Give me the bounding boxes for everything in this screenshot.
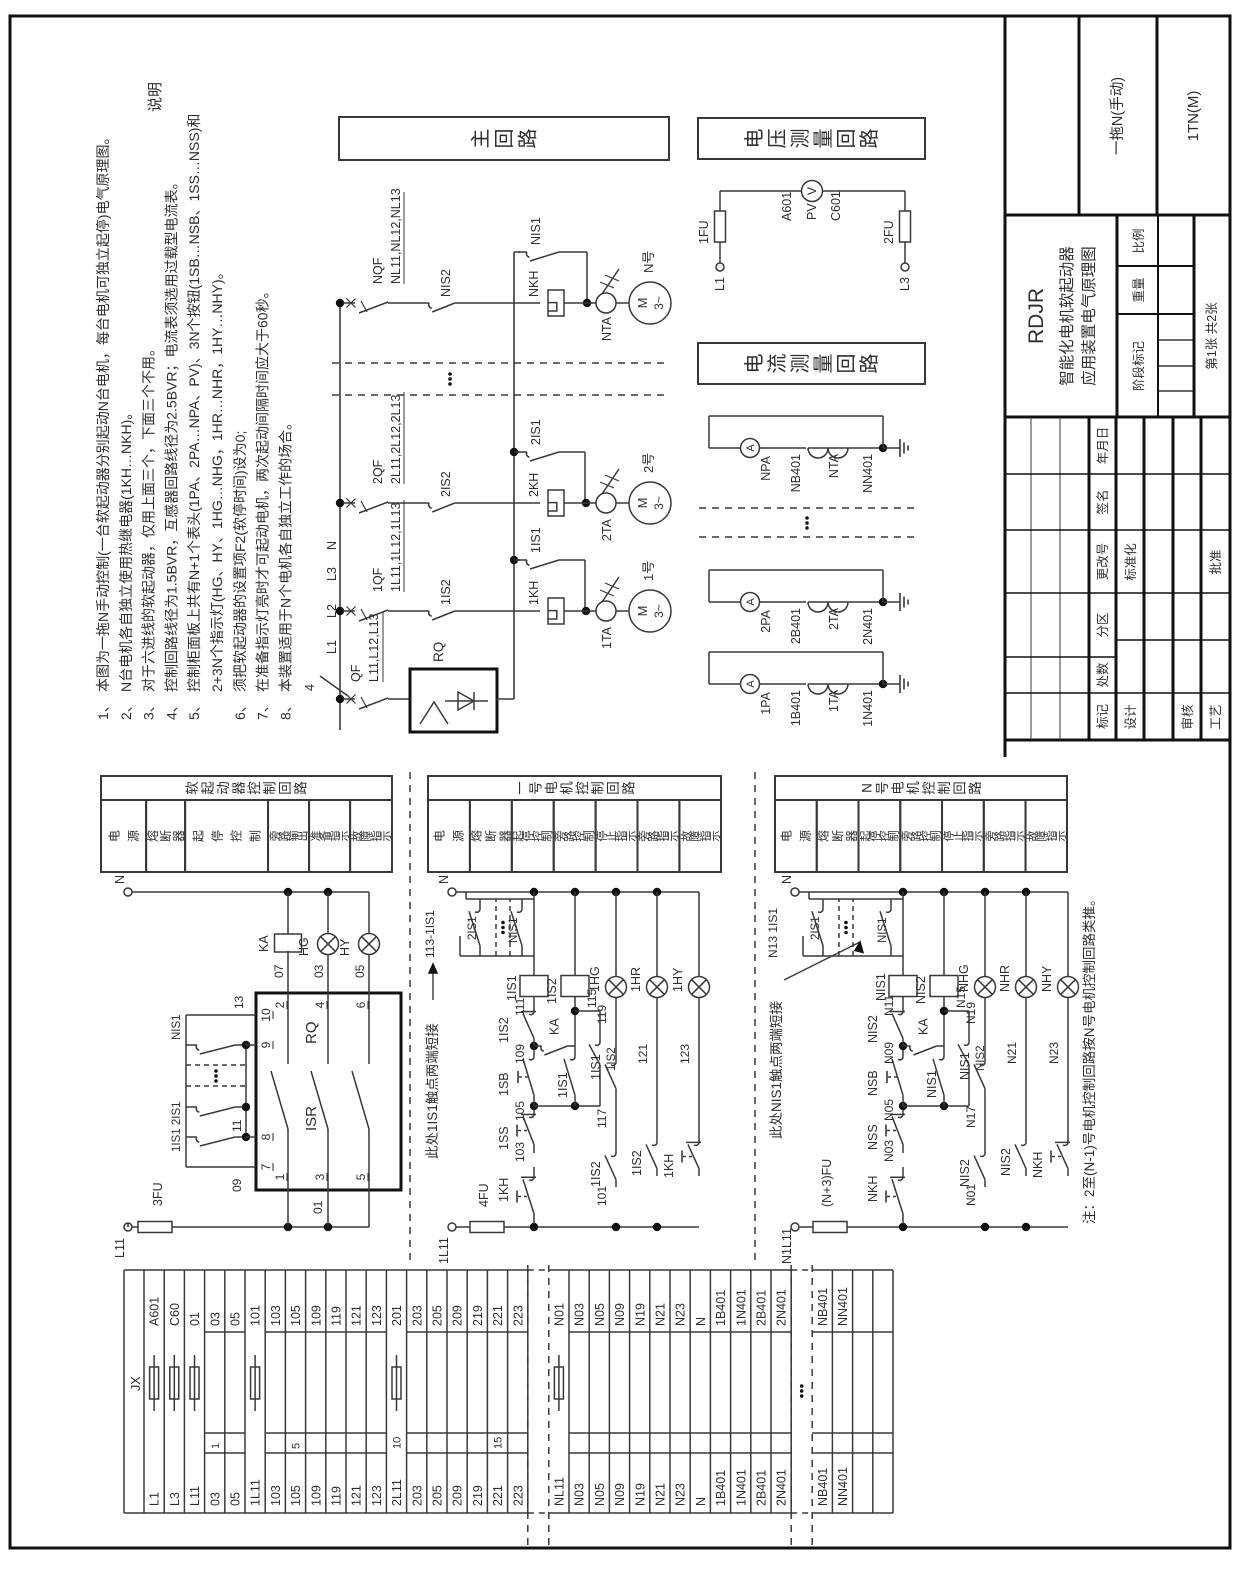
svg-text:1号: 1号	[641, 561, 656, 581]
svg-text:1N401: 1N401	[734, 1289, 748, 1326]
svg-text:机: 机	[906, 781, 921, 795]
svg-text:源: 源	[799, 830, 813, 842]
svg-text:本装置适用于N个电机各自独立工作的场合。: 本装置适用于N个电机各自独立工作的场合。	[277, 416, 293, 692]
svg-text:205: 205	[431, 1485, 445, 1506]
svg-text:2B401: 2B401	[755, 1470, 769, 1506]
svg-text:1IS2: 1IS2	[545, 978, 559, 1004]
svg-text:1IS2: 1IS2	[630, 1150, 644, 1176]
svg-text:示: 示	[380, 830, 392, 841]
svg-text:NQF: NQF	[371, 257, 385, 284]
svg-text:103: 103	[269, 1305, 283, 1326]
svg-text:制: 制	[248, 830, 262, 842]
svg-text:119: 119	[330, 1486, 344, 1506]
svg-text:回: 回	[606, 781, 621, 795]
svg-text:105: 105	[513, 1101, 527, 1121]
svg-text:标准化: 标准化	[1124, 543, 1138, 581]
svg-text:NN401: NN401	[836, 1287, 850, 1326]
svg-text:处数: 处数	[1095, 662, 1110, 688]
svg-text:2L11,2L12,2L13: 2L11,2L12,2L13	[389, 395, 403, 484]
svg-text:此处1IS1触点两端短接: 此处1IS1触点两端短接	[424, 1023, 440, 1159]
svg-text:NIS1: NIS1	[877, 917, 889, 943]
svg-text:C60: C60	[168, 1303, 182, 1326]
svg-text:N: N	[694, 1497, 708, 1506]
svg-text:2B401: 2B401	[755, 1290, 769, 1326]
svg-text:219: 219	[471, 1305, 485, 1326]
svg-text:对于六进线的软起动器，仅用上面三个，下面三个不用。: 对于六进线的软起动器，仅用上面三个，下面三个不用。	[141, 342, 157, 692]
svg-text:10: 10	[392, 1437, 404, 1449]
svg-text:量: 量	[813, 129, 835, 149]
svg-text:4、: 4、	[163, 698, 179, 720]
svg-text:N台电机各自独立使用热继电器(1KH…NKH)。: N台电机各自独立使用热继电器(1KH…NKH)。	[118, 406, 134, 692]
svg-text:电: 电	[780, 830, 794, 842]
svg-text:C601: C601	[829, 191, 843, 221]
svg-text:KA: KA	[917, 1018, 931, 1035]
svg-text:KA: KA	[257, 935, 271, 952]
svg-text:4: 4	[313, 1001, 327, 1008]
svg-text:一: 一	[513, 781, 528, 795]
svg-text:L11: L11	[188, 1486, 202, 1506]
svg-text:回: 回	[952, 781, 967, 795]
svg-text:3FU: 3FU	[151, 1182, 165, 1206]
svg-text:9: 9	[259, 1041, 273, 1048]
svg-text:209: 209	[451, 1305, 465, 1326]
svg-text:NIS2: NIS2	[439, 269, 453, 297]
svg-text:路: 路	[968, 781, 983, 795]
svg-text:L3: L3	[168, 1492, 182, 1506]
svg-text:源: 源	[452, 830, 466, 842]
svg-text:回: 回	[836, 129, 858, 149]
svg-text:113-1IS1: 113-1IS1	[423, 910, 437, 958]
svg-text:器: 器	[231, 781, 246, 795]
svg-text:109: 109	[309, 1305, 323, 1326]
svg-text:回: 回	[494, 129, 516, 149]
svg-text:年月日: 年月日	[1096, 427, 1110, 465]
svg-text:PV: PV	[805, 203, 819, 220]
svg-text:1、: 1、	[95, 698, 111, 720]
svg-text:8、: 8、	[277, 698, 293, 720]
svg-text:N09: N09	[613, 1303, 627, 1326]
svg-text:3、: 3、	[141, 698, 157, 720]
svg-text:N13 1IS1: N13 1IS1	[766, 908, 780, 958]
svg-text:RQ: RQ	[431, 642, 446, 662]
svg-text:1PA: 1PA	[759, 691, 773, 714]
svg-text:NL11,NL12,NL13: NL11,NL12,NL13	[389, 188, 403, 284]
svg-text:电: 电	[743, 354, 766, 374]
svg-text:1TA: 1TA	[827, 689, 841, 712]
svg-text:N03: N03	[573, 1303, 587, 1326]
svg-text:A: A	[745, 598, 757, 606]
svg-text:4FU: 4FU	[477, 1183, 491, 1207]
svg-text:N09: N09	[613, 1483, 627, 1506]
svg-text:NIS1: NIS1	[874, 973, 888, 1001]
svg-text:流: 流	[766, 354, 789, 374]
svg-text:01: 01	[311, 1200, 325, 1214]
svg-text:ISR: ISR	[303, 1106, 320, 1131]
svg-text:A: A	[745, 680, 757, 688]
svg-text:119: 119	[330, 1306, 344, 1326]
svg-text:2PA: 2PA	[759, 609, 773, 632]
svg-text:注：2至(N-1)号电机控制回路按N号电机控制回路类推。: 注：2至(N-1)号电机控制回路按N号电机控制回路类推。	[1082, 892, 1097, 1224]
svg-text:N09: N09	[882, 1042, 896, 1064]
svg-text:HG: HG	[297, 937, 311, 956]
svg-text:N03: N03	[573, 1483, 587, 1506]
svg-text:2QF: 2QF	[371, 459, 385, 484]
svg-text:制: 制	[583, 830, 596, 841]
svg-text:回: 回	[278, 781, 293, 795]
svg-text:控制柜面板上共有N+1个表头(1PA、2PA…NPA、PV): 控制柜面板上共有N+1个表头(1PA、2PA…NPA、PV)、3N个按钮(1SB…	[186, 114, 202, 692]
svg-text:断: 断	[830, 830, 845, 842]
svg-text:电: 电	[433, 830, 447, 842]
svg-text:示: 示	[972, 830, 984, 841]
svg-text:2B401: 2B401	[789, 608, 803, 644]
svg-text:审核: 审核	[1180, 704, 1195, 730]
svg-text:121: 121	[350, 1485, 364, 1506]
svg-text:断: 断	[158, 830, 173, 842]
svg-text:NSB: NSB	[866, 1070, 880, 1096]
svg-text:熔: 熔	[145, 830, 160, 842]
svg-text:1KH: 1KH	[527, 581, 541, 605]
svg-text:117: 117	[595, 1109, 609, 1128]
svg-text:N05: N05	[593, 1303, 607, 1326]
svg-text:15: 15	[493, 1437, 505, 1449]
svg-text:1TA: 1TA	[600, 626, 614, 649]
svg-text:JX: JX	[129, 1376, 143, 1391]
svg-text:8: 8	[259, 1133, 273, 1140]
svg-text:停: 停	[209, 830, 224, 842]
svg-text:NIS1: NIS1	[958, 1052, 972, 1080]
svg-text:器: 器	[845, 830, 859, 842]
svg-text:示: 示	[1055, 830, 1067, 841]
svg-text:221: 221	[491, 1305, 505, 1326]
svg-text:L1: L1	[148, 1492, 162, 1506]
svg-text:路: 路	[293, 781, 308, 795]
svg-text:1TN(M): 1TN(M)	[1185, 91, 1202, 142]
svg-text:07: 07	[272, 964, 286, 978]
svg-text:L11: L11	[113, 1238, 127, 1258]
svg-text:1SS: 1SS	[497, 1126, 511, 1150]
svg-text:09: 09	[230, 1178, 244, 1192]
svg-text:此处NIS1触点两端短接: 此处NIS1触点两端短接	[768, 1001, 784, 1139]
svg-text:测: 测	[789, 129, 812, 149]
svg-text:209: 209	[451, 1485, 465, 1506]
svg-text:6: 6	[354, 1001, 368, 1008]
svg-text:205: 205	[431, 1305, 445, 1326]
svg-text:路: 路	[858, 354, 881, 374]
svg-text:103: 103	[269, 1485, 283, 1506]
svg-text:11: 11	[230, 1119, 244, 1132]
svg-text:2N401: 2N401	[775, 1469, 789, 1506]
svg-text:5、: 5、	[186, 698, 202, 720]
svg-text:1IS1: 1IS1	[529, 527, 543, 553]
svg-text:L11,L12,L13: L11,L12,L13	[367, 613, 381, 682]
svg-text:1N401: 1N401	[734, 1469, 748, 1506]
svg-text:控: 控	[921, 781, 936, 795]
svg-text:101: 101	[249, 1305, 263, 1326]
svg-text:NIS1: NIS1	[171, 1014, 183, 1040]
svg-text:NIS2: NIS2	[866, 1015, 880, 1043]
svg-text:1IS2: 1IS2	[497, 1017, 511, 1043]
svg-text:制: 制	[262, 781, 277, 795]
svg-text:N21: N21	[654, 1303, 668, 1326]
svg-text:出: 出	[295, 831, 309, 842]
svg-text:2号: 2号	[641, 453, 656, 473]
svg-text:N23: N23	[674, 1483, 688, 1506]
svg-text:NN401: NN401	[836, 1467, 850, 1506]
svg-text:L1: L1	[713, 277, 727, 291]
svg-text:L1: L1	[325, 640, 339, 654]
svg-text:6、: 6、	[232, 698, 248, 720]
svg-text:标记: 标记	[1096, 704, 1110, 730]
svg-text:NHR: NHR	[998, 965, 1012, 992]
svg-text:10: 10	[259, 1008, 273, 1022]
svg-text:01: 01	[188, 1312, 202, 1326]
svg-text:13: 13	[232, 995, 246, 1009]
svg-text:2、: 2、	[118, 698, 134, 720]
svg-text:109: 109	[513, 1044, 527, 1064]
svg-text:工艺: 工艺	[1209, 704, 1223, 729]
svg-text:L3: L3	[898, 277, 912, 291]
svg-text:N05: N05	[593, 1483, 607, 1506]
svg-text:第1张 共2张: 第1张 共2张	[1204, 302, 1219, 370]
svg-text:起: 起	[200, 781, 215, 795]
svg-text:N01: N01	[964, 1184, 978, 1206]
svg-text:NHG: NHG	[957, 964, 971, 992]
svg-text:一拖N(手动): 一拖N(手动)	[1109, 77, 1126, 155]
svg-text:NIS2: NIS2	[958, 1159, 972, 1187]
svg-text:203: 203	[410, 1485, 424, 1506]
svg-text:测: 测	[789, 354, 812, 374]
svg-text:1IS1: 1IS1	[505, 975, 519, 1001]
svg-text:源: 源	[126, 830, 140, 842]
svg-text:控: 控	[575, 781, 590, 795]
svg-text:电: 电	[544, 781, 559, 795]
svg-text:2N401: 2N401	[775, 1289, 789, 1326]
svg-text:示: 示	[626, 830, 638, 841]
svg-text:器: 器	[498, 830, 512, 842]
svg-text:1IS1: 1IS1	[556, 1072, 570, 1098]
svg-text:示: 示	[1014, 830, 1026, 841]
svg-text:RDJR: RDJR	[1025, 288, 1048, 344]
svg-text:121: 121	[350, 1305, 364, 1326]
svg-text:(N+3)FU: (N+3)FU	[820, 1159, 834, 1207]
svg-text:示: 示	[709, 830, 721, 841]
svg-text:电: 电	[890, 781, 905, 795]
svg-text:熔: 熔	[815, 830, 830, 842]
svg-text:5: 5	[354, 1173, 368, 1180]
svg-text:比例: 比例	[1132, 228, 1146, 253]
svg-text:L3: L3	[325, 567, 339, 581]
svg-text:NL11: NL11	[553, 1477, 567, 1506]
svg-text:1SB: 1SB	[497, 1072, 511, 1096]
svg-text:219: 219	[471, 1485, 485, 1506]
svg-text:2IS1: 2IS1	[467, 916, 479, 940]
svg-text:1IS2: 1IS2	[439, 579, 453, 605]
svg-text:V: V	[805, 187, 819, 195]
svg-text:05: 05	[229, 1312, 243, 1326]
svg-text:2TA: 2TA	[827, 607, 841, 630]
svg-text:N1L11: N1L11	[780, 1228, 794, 1264]
svg-text:制: 制	[929, 830, 942, 841]
svg-text:路: 路	[858, 129, 881, 149]
svg-text:NB401: NB401	[816, 1468, 830, 1506]
svg-text:软: 软	[185, 781, 200, 795]
svg-text:路: 路	[621, 781, 636, 795]
svg-text:2TA: 2TA	[600, 518, 614, 541]
svg-text:A601: A601	[148, 1297, 162, 1326]
svg-text:N21: N21	[654, 1483, 668, 1506]
svg-text:2L11: 2L11	[390, 1479, 404, 1506]
svg-text:101: 101	[595, 1186, 609, 1206]
svg-text:更改号: 更改号	[1096, 543, 1110, 581]
svg-text:NB401: NB401	[816, 1288, 830, 1326]
svg-text:N: N	[780, 875, 794, 884]
svg-text:N23: N23	[1047, 1042, 1061, 1064]
svg-text:1QF: 1QF	[371, 567, 385, 592]
svg-text:NSS: NSS	[866, 1124, 880, 1150]
svg-text:分区: 分区	[1096, 612, 1110, 637]
svg-text:4: 4	[303, 684, 317, 691]
svg-text:断: 断	[483, 830, 498, 842]
svg-text:NIS1: NIS1	[925, 1070, 939, 1098]
svg-text:223: 223	[511, 1485, 525, 1506]
svg-text:电: 电	[107, 830, 121, 842]
svg-text:03: 03	[208, 1312, 222, 1326]
svg-text:05: 05	[229, 1492, 243, 1506]
svg-text:2: 2	[273, 1001, 287, 1008]
svg-text:2FU: 2FU	[882, 220, 896, 244]
svg-text:1FU: 1FU	[697, 220, 711, 244]
svg-text:NIS1: NIS1	[529, 217, 543, 245]
svg-text:119: 119	[595, 1005, 609, 1024]
svg-text:N: N	[694, 1317, 708, 1326]
svg-text:123: 123	[678, 1044, 692, 1064]
svg-text:N21: N21	[1005, 1042, 1019, 1064]
svg-text:1B401: 1B401	[789, 690, 803, 726]
svg-text:回: 回	[836, 354, 858, 374]
svg-text:NKH: NKH	[1031, 1152, 1045, 1178]
svg-text:2IS1: 2IS1	[810, 916, 822, 940]
svg-text:1IS2: 1IS2	[589, 1161, 603, 1187]
svg-text:NN401: NN401	[861, 454, 875, 493]
svg-text:1: 1	[210, 1443, 222, 1449]
svg-text:1HG: 1HG	[588, 966, 602, 992]
svg-text:05: 05	[353, 964, 367, 978]
svg-text:03: 03	[312, 964, 326, 978]
svg-text:1KH: 1KH	[662, 1154, 676, 1178]
svg-text:KA: KA	[548, 1018, 562, 1035]
svg-text:HY: HY	[338, 938, 352, 956]
svg-text:应用装置电气原理图: 应用装置电气原理图	[1079, 246, 1098, 386]
svg-text:熔: 熔	[469, 830, 484, 842]
svg-text:须把软起动器的设置项F2(软停时间)设为0;: 须把软起动器的设置项F2(软停时间)设为0;	[232, 431, 248, 692]
svg-text:A601: A601	[780, 192, 794, 221]
svg-text:3~: 3~	[652, 604, 666, 618]
svg-text:A: A	[745, 444, 757, 452]
svg-text:N17: N17	[964, 1106, 978, 1128]
svg-text:动: 动	[216, 781, 231, 795]
svg-text:号: 号	[528, 781, 543, 795]
svg-text:N19: N19	[633, 1483, 647, 1506]
svg-text:电: 电	[743, 129, 766, 149]
svg-text:7、: 7、	[255, 698, 271, 720]
svg-text:M: M	[635, 606, 650, 617]
svg-text:器: 器	[172, 830, 186, 842]
svg-text:03: 03	[208, 1492, 222, 1506]
svg-text:QF: QF	[349, 664, 363, 682]
svg-text:123: 123	[370, 1485, 384, 1506]
svg-text:NIS2: NIS2	[999, 1148, 1013, 1176]
svg-text:N01: N01	[553, 1303, 567, 1326]
svg-text:设计: 设计	[1123, 704, 1138, 729]
svg-text:1L11,1L12,1L13: 1L11,1L12,1L13	[389, 503, 403, 592]
svg-text:1L11: 1L11	[437, 1237, 451, 1264]
svg-text:NIS1: NIS1	[508, 917, 520, 943]
svg-text:1IS1 2IS1: 1IS1 2IS1	[171, 1101, 183, 1152]
svg-text:智能化电机软起动器: 智能化电机软起动器	[1058, 246, 1076, 386]
svg-text:1HR: 1HR	[629, 967, 643, 992]
svg-text:号: 号	[875, 781, 890, 795]
svg-text:示: 示	[668, 830, 680, 841]
svg-text:NIS2: NIS2	[914, 976, 928, 1004]
svg-text:控: 控	[247, 781, 262, 795]
svg-text:3: 3	[313, 1173, 327, 1180]
svg-text:量: 量	[813, 354, 835, 374]
svg-text:N19: N19	[633, 1303, 647, 1326]
svg-text:105: 105	[289, 1305, 303, 1326]
svg-text:N号: N号	[641, 251, 656, 273]
svg-text:203: 203	[410, 1305, 424, 1326]
svg-text:起: 起	[191, 830, 205, 842]
svg-text:RQ: RQ	[303, 1022, 320, 1045]
svg-text:本图为一拖N手动控制(一台软起动器分别起动N台电机，每台电机: 本图为一拖N手动控制(一台软起动器分别起动N台电机，每台电机可独立起停)电气原理…	[95, 130, 111, 692]
svg-text:制: 制	[590, 781, 605, 795]
svg-text:NTA: NTA	[600, 316, 614, 341]
svg-text:阶段标记: 阶段标记	[1131, 341, 1146, 392]
svg-text:制: 制	[541, 830, 554, 841]
svg-text:221: 221	[491, 1485, 505, 1506]
svg-text:2KH: 2KH	[527, 473, 541, 497]
svg-text:NKH: NKH	[866, 1176, 880, 1202]
svg-text:机: 机	[559, 781, 574, 795]
svg-text:N: N	[859, 783, 874, 793]
svg-text:制: 制	[888, 830, 901, 841]
svg-text:N: N	[437, 875, 451, 884]
svg-text:105: 105	[289, 1485, 303, 1506]
svg-text:1KH: 1KH	[497, 1178, 511, 1202]
svg-text:N: N	[113, 875, 127, 884]
svg-text:主: 主	[470, 129, 493, 149]
svg-text:在准备指示灯亮时才可起动电机，两次起动间隔时间应大于60秒。: 在准备指示灯亮时才可起动电机，两次起动间隔时间应大于60秒。	[255, 284, 271, 692]
svg-text:1B401: 1B401	[714, 1470, 728, 1506]
svg-text:压: 压	[767, 129, 789, 149]
svg-text:控制回路线径为1.5BVR，互感器回路线径为2.5BVR；电: 控制回路线径为1.5BVR，互感器回路线径为2.5BVR；电流表须选用过载型电流…	[163, 176, 180, 693]
svg-text:3~: 3~	[652, 296, 666, 310]
svg-text:1IS1: 1IS1	[589, 1054, 603, 1080]
svg-text:1HY: 1HY	[671, 967, 685, 992]
svg-text:201: 201	[390, 1305, 404, 1326]
svg-text:NHY: NHY	[1040, 965, 1054, 992]
svg-text:NPA: NPA	[759, 455, 773, 480]
svg-text:7: 7	[259, 1163, 273, 1170]
svg-text:签名: 签名	[1095, 489, 1110, 514]
svg-text:N19: N19	[964, 1002, 978, 1024]
svg-text:123: 123	[370, 1305, 384, 1326]
svg-text:N: N	[325, 541, 339, 550]
svg-text:1: 1	[273, 1173, 287, 1180]
svg-text:109: 109	[309, 1485, 323, 1506]
svg-text:5: 5	[291, 1443, 303, 1449]
svg-text:路: 路	[517, 129, 540, 149]
